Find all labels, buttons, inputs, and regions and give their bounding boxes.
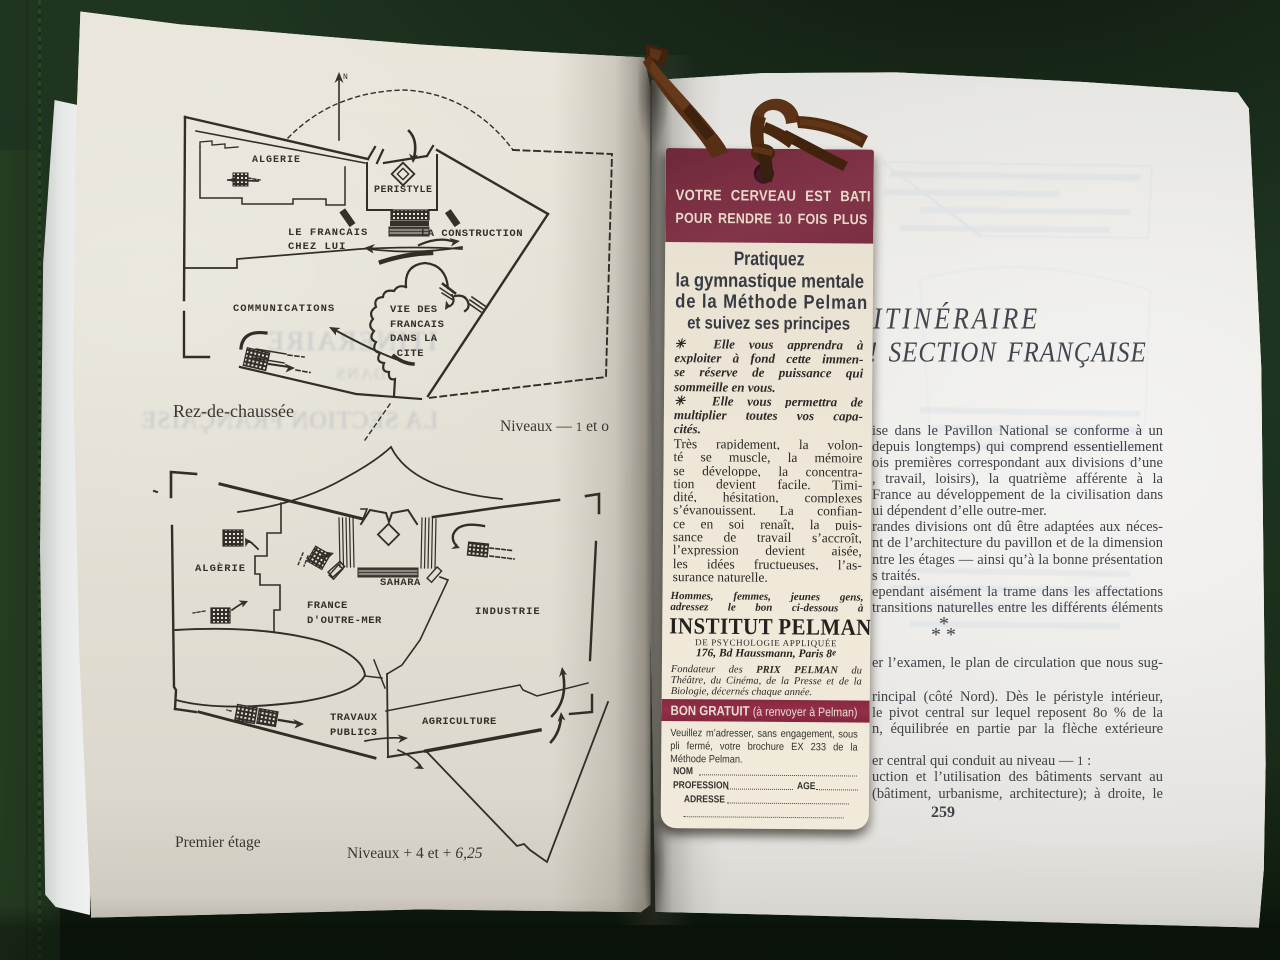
svg-text:N: N bbox=[343, 73, 348, 82]
